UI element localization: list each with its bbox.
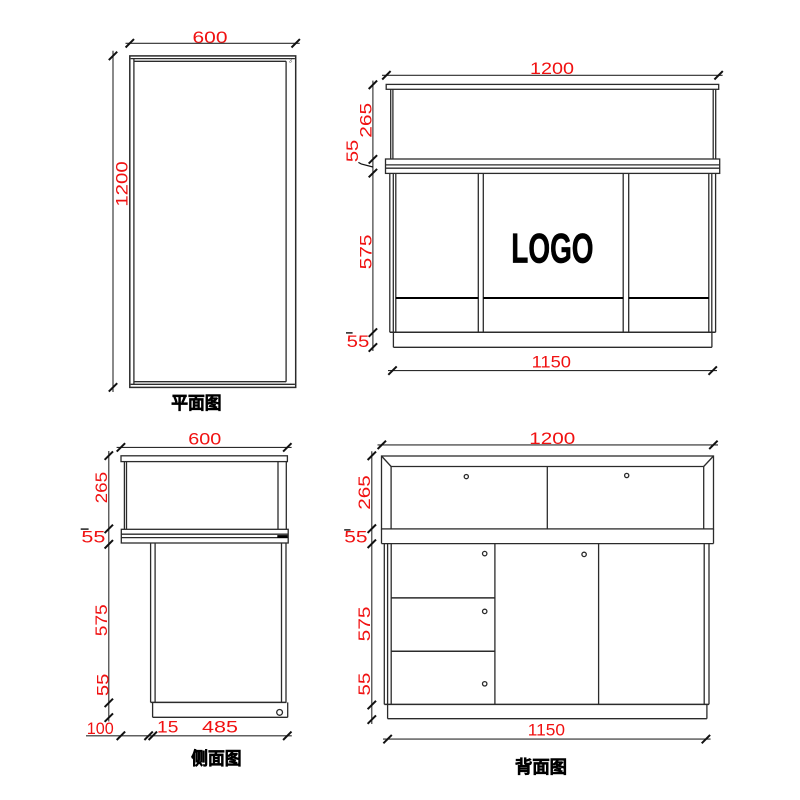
svg-text:265: 265 bbox=[356, 103, 375, 138]
svg-text:575: 575 bbox=[355, 606, 374, 641]
svg-text:侧面图: 侧面图 bbox=[191, 748, 241, 768]
svg-text:LOGO: LOGO bbox=[511, 225, 593, 272]
svg-text:15: 15 bbox=[157, 718, 178, 737]
svg-text:背面图: 背面图 bbox=[515, 757, 567, 777]
svg-text:575: 575 bbox=[356, 234, 375, 269]
svg-text:485: 485 bbox=[202, 718, 238, 737]
svg-text:55: 55 bbox=[81, 527, 105, 546]
svg-text:3: 3 bbox=[289, 58, 292, 64]
svg-text:100: 100 bbox=[87, 719, 114, 738]
svg-text:1200: 1200 bbox=[113, 161, 132, 206]
svg-text:平面图: 平面图 bbox=[171, 393, 221, 413]
svg-text:1150: 1150 bbox=[532, 353, 571, 372]
svg-text:600: 600 bbox=[188, 429, 221, 448]
svg-text:600: 600 bbox=[193, 28, 228, 47]
svg-text:575: 575 bbox=[92, 604, 111, 636]
svg-text:55: 55 bbox=[355, 673, 374, 696]
svg-text:55: 55 bbox=[347, 332, 370, 351]
svg-text:265: 265 bbox=[92, 472, 111, 504]
svg-text:265: 265 bbox=[355, 475, 374, 510]
svg-text:1150: 1150 bbox=[528, 721, 565, 740]
svg-text:55: 55 bbox=[93, 674, 112, 697]
svg-text:55: 55 bbox=[343, 140, 362, 162]
